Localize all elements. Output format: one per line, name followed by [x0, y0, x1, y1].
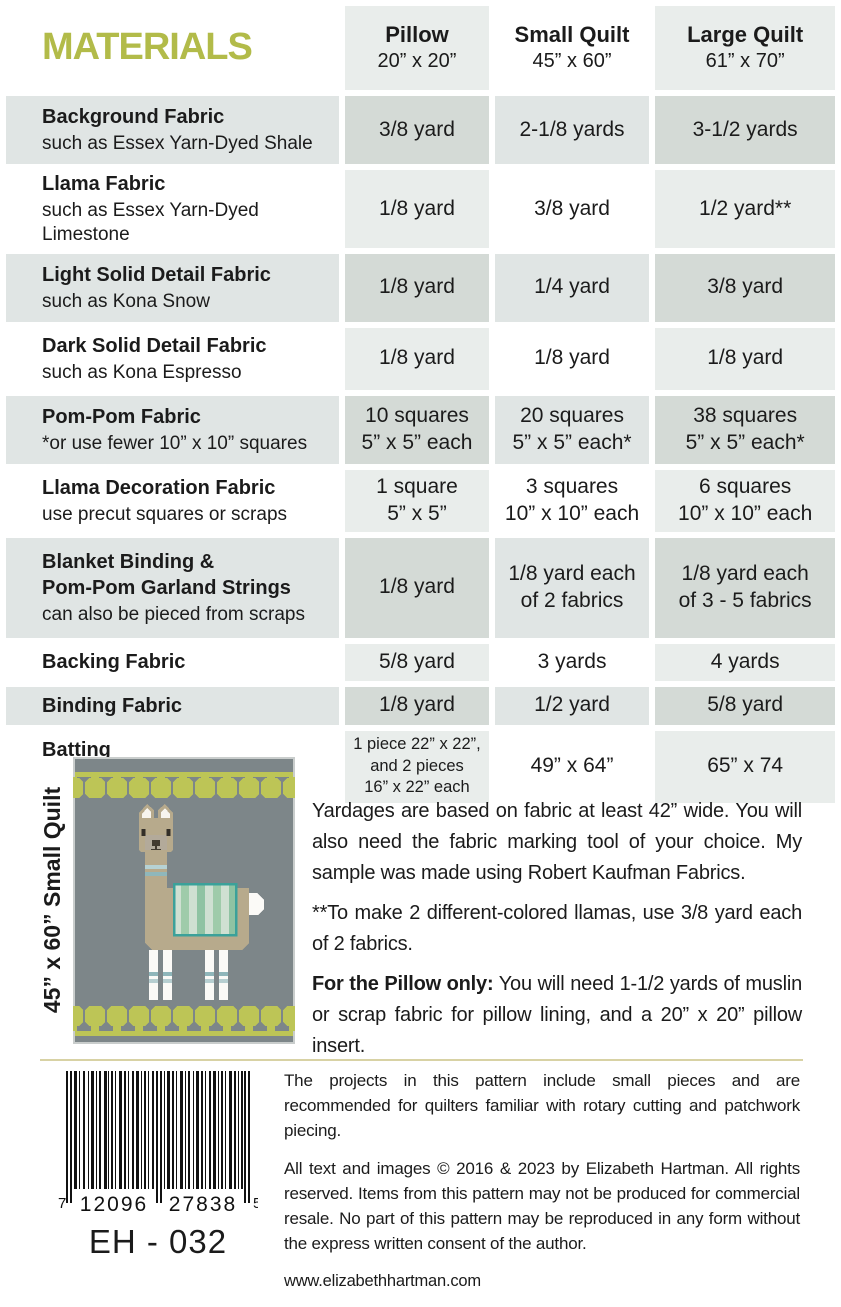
- cell-small-quilt: 3/8 yard: [495, 170, 650, 248]
- cell-large-quilt: 65” x 74: [655, 731, 835, 803]
- cell-small-quilt: 49” x 64”: [495, 731, 650, 803]
- row-sublabel: such as Essex Yarn-Dyed Limestone: [42, 199, 338, 247]
- table-row: Dark Solid Detail Fabricsuch as Kona Esp…: [6, 328, 835, 390]
- llama-blanket: [173, 883, 237, 936]
- row-sublabel: use precut squares or scraps: [42, 503, 338, 527]
- row-label: Blanket Binding & Pom-Pom Garland String…: [42, 549, 338, 601]
- cell-pillow: 1/8 yard: [345, 254, 489, 322]
- notes-section: Yardages are based on fabric at least 42…: [312, 796, 802, 1071]
- column-header-pillow: Pillow20” x 20”: [345, 6, 489, 90]
- column-header-small-quilt: Small Quilt45” x 60”: [495, 6, 650, 90]
- barcode-group-1: 12096: [80, 1193, 148, 1216]
- quilt-caption: 45” x 60” Small Quilt: [32, 757, 72, 1043]
- table-row: Backing Fabric 5/8 yard 3 yards 4 yards: [6, 644, 835, 681]
- quilt-illustration: [73, 757, 295, 1044]
- row-sublabel: such as Kona Espresso: [42, 361, 338, 385]
- table-row: Llama Fabricsuch as Essex Yarn-Dyed Lime…: [6, 170, 835, 248]
- cell-small-quilt: 3 yards: [495, 644, 650, 681]
- row-label: Llama Fabric: [42, 171, 338, 197]
- cell-large-quilt: 4 yards: [655, 644, 835, 681]
- two-llama-note: **To make 2 different-colored llamas, us…: [312, 898, 802, 960]
- cell-pillow: 1 piece 22” x 22”, and 2 pieces 16” x 22…: [345, 731, 489, 803]
- page-title: MATERIALS: [42, 24, 338, 72]
- cell-large-quilt: 3-1/2 yards: [655, 96, 835, 164]
- cell-large-quilt: 1/8 yard: [655, 328, 835, 390]
- barcode-right-digit: 5: [253, 1195, 258, 1212]
- cell-large-quilt: 1/8 yard each of 3 - 5 fabrics: [655, 538, 835, 638]
- barcode-left-digit: 7: [58, 1195, 66, 1212]
- materials-table: MATERIALS Pillow20” x 20” Small Quilt45”…: [0, 0, 841, 809]
- cell-small-quilt: 1/8 yard: [495, 328, 650, 390]
- cell-pillow: 1/8 yard: [345, 687, 489, 725]
- row-sublabel: can also be pieced from scraps: [42, 603, 338, 627]
- cell-pillow: 1/8 yard: [345, 170, 489, 248]
- cell-pillow: 1/8 yard: [345, 328, 489, 390]
- row-label: Backing Fabric: [42, 649, 338, 675]
- table-header-row: MATERIALS Pillow20” x 20” Small Quilt45”…: [6, 6, 835, 90]
- cell-large-quilt: 3/8 yard: [655, 254, 835, 322]
- upc-barcode: 7 12096 27838 5: [58, 1071, 258, 1217]
- cell-small-quilt: 20 squares 5” x 5” each*: [495, 396, 650, 464]
- cell-pillow: 10 squares 5” x 5” each: [345, 396, 489, 464]
- table-row: Blanket Binding & Pom-Pom Garland String…: [6, 538, 835, 638]
- pattern-back-page: { "title": "MATERIALS", "columns": [ {"n…: [0, 0, 841, 1300]
- row-sublabel: *or use fewer 10” x 10” squares: [42, 432, 338, 456]
- yardage-note: Yardages are based on fabric at least 42…: [312, 796, 802, 889]
- cell-small-quilt: 2-1/8 yards: [495, 96, 650, 164]
- pillow-note: For the Pillow only: You will need 1-1/2…: [312, 969, 802, 1062]
- column-header-large-quilt: Large Quilt61” x 70”: [655, 6, 835, 90]
- website-url: www.elizabethhartman.com: [284, 1269, 800, 1294]
- table-row: Pom-Pom Fabric*or use fewer 10” x 10” sq…: [6, 396, 835, 464]
- garland-string-bottom: [75, 1031, 293, 1036]
- row-label: Binding Fabric: [42, 693, 338, 719]
- skill-note: The projects in this pattern include sma…: [284, 1068, 800, 1143]
- table-row: Binding Fabric 1/8 yard 1/2 yard 5/8 yar…: [6, 687, 835, 725]
- row-label: Pom-Pom Fabric: [42, 404, 338, 430]
- cell-large-quilt: 5/8 yard: [655, 687, 835, 725]
- row-label: Background Fabric: [42, 104, 338, 130]
- pattern-code: EH - 032: [53, 1223, 263, 1261]
- table-row: Light Solid Detail Fabricsuch as Kona Sn…: [6, 254, 835, 322]
- table-row: Llama Decoration Fabricuse precut square…: [6, 470, 835, 532]
- small-quilt-preview: 45” x 60” Small Quilt: [73, 757, 295, 1044]
- pillow-note-lead: For the Pillow only:: [312, 973, 493, 995]
- cell-large-quilt: 6 squares 10” x 10” each: [655, 470, 835, 532]
- row-label: Dark Solid Detail Fabric: [42, 333, 338, 359]
- barcode-group-2: 27838: [169, 1193, 237, 1216]
- cell-pillow: 1 square 5” x 5”: [345, 470, 489, 532]
- barcode-block: 7 12096 27838 5 EH - 032: [53, 1071, 263, 1261]
- cell-small-quilt: 1/8 yard each of 2 fabrics: [495, 538, 650, 638]
- table-row: Background Fabricsuch as Essex Yarn-Dyed…: [6, 96, 835, 164]
- cell-small-quilt: 3 squares 10” x 10” each: [495, 470, 650, 532]
- row-sublabel: such as Essex Yarn-Dyed Shale: [42, 132, 338, 156]
- copyright-note: All text and images © 2016 & 2023 by Eli…: [284, 1156, 800, 1256]
- cell-pillow: 5/8 yard: [345, 644, 489, 681]
- row-label: Llama Decoration Fabric: [42, 475, 338, 501]
- cell-small-quilt: 1/4 yard: [495, 254, 650, 322]
- divider-line: [40, 1059, 803, 1061]
- cell-large-quilt: 38 squares 5” x 5” each*: [655, 396, 835, 464]
- cell-pillow: 3/8 yard: [345, 96, 489, 164]
- cell-pillow: 1/8 yard: [345, 538, 489, 638]
- cell-large-quilt: 1/2 yard**: [655, 170, 835, 248]
- cell-small-quilt: 1/2 yard: [495, 687, 650, 725]
- row-sublabel: such as Kona Snow: [42, 290, 338, 314]
- footer-text-block: The projects in this pattern include sma…: [284, 1068, 800, 1307]
- row-label: Light Solid Detail Fabric: [42, 262, 338, 288]
- garland-string-top: [75, 772, 293, 777]
